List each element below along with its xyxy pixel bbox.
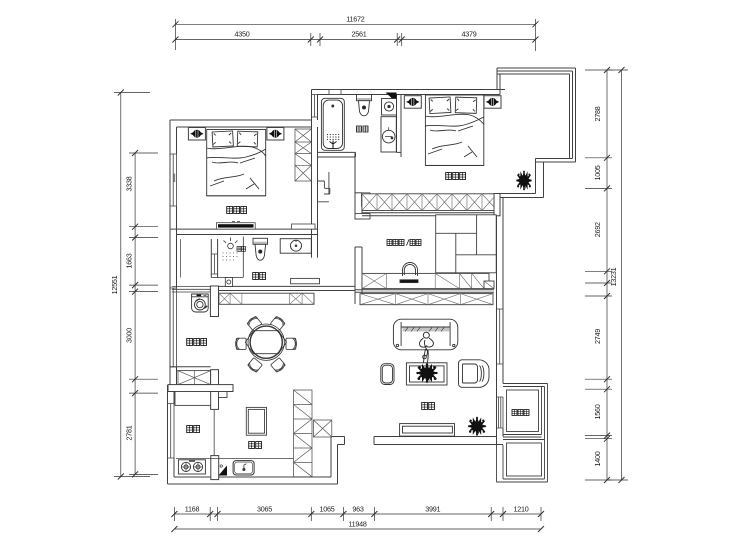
svg-text:1560: 1560: [593, 404, 602, 419]
svg-text:2781: 2781: [125, 425, 134, 440]
svg-text:4350: 4350: [235, 30, 250, 39]
svg-text:11672: 11672: [346, 15, 364, 24]
svg-text:2561: 2561: [352, 30, 367, 39]
svg-text:1400: 1400: [593, 451, 602, 466]
svg-text:963: 963: [352, 505, 363, 514]
svg-text:2749: 2749: [593, 329, 602, 344]
svg-text:4379: 4379: [462, 30, 477, 39]
svg-text:1210: 1210: [514, 505, 529, 514]
svg-text:11948: 11948: [348, 520, 366, 529]
svg-text:1065: 1065: [320, 505, 335, 514]
svg-text:3338: 3338: [125, 176, 134, 191]
svg-text:1005: 1005: [593, 165, 602, 180]
svg-text:12551: 12551: [110, 275, 119, 294]
svg-text:2788: 2788: [593, 106, 602, 121]
svg-text:3991: 3991: [425, 505, 440, 514]
svg-text:1663: 1663: [125, 253, 134, 268]
svg-text:3065: 3065: [257, 505, 272, 514]
svg-text:3000: 3000: [125, 328, 134, 343]
svg-text:1168: 1168: [185, 505, 200, 514]
svg-text:13231: 13231: [609, 267, 618, 286]
svg-text:2692: 2692: [593, 222, 602, 237]
